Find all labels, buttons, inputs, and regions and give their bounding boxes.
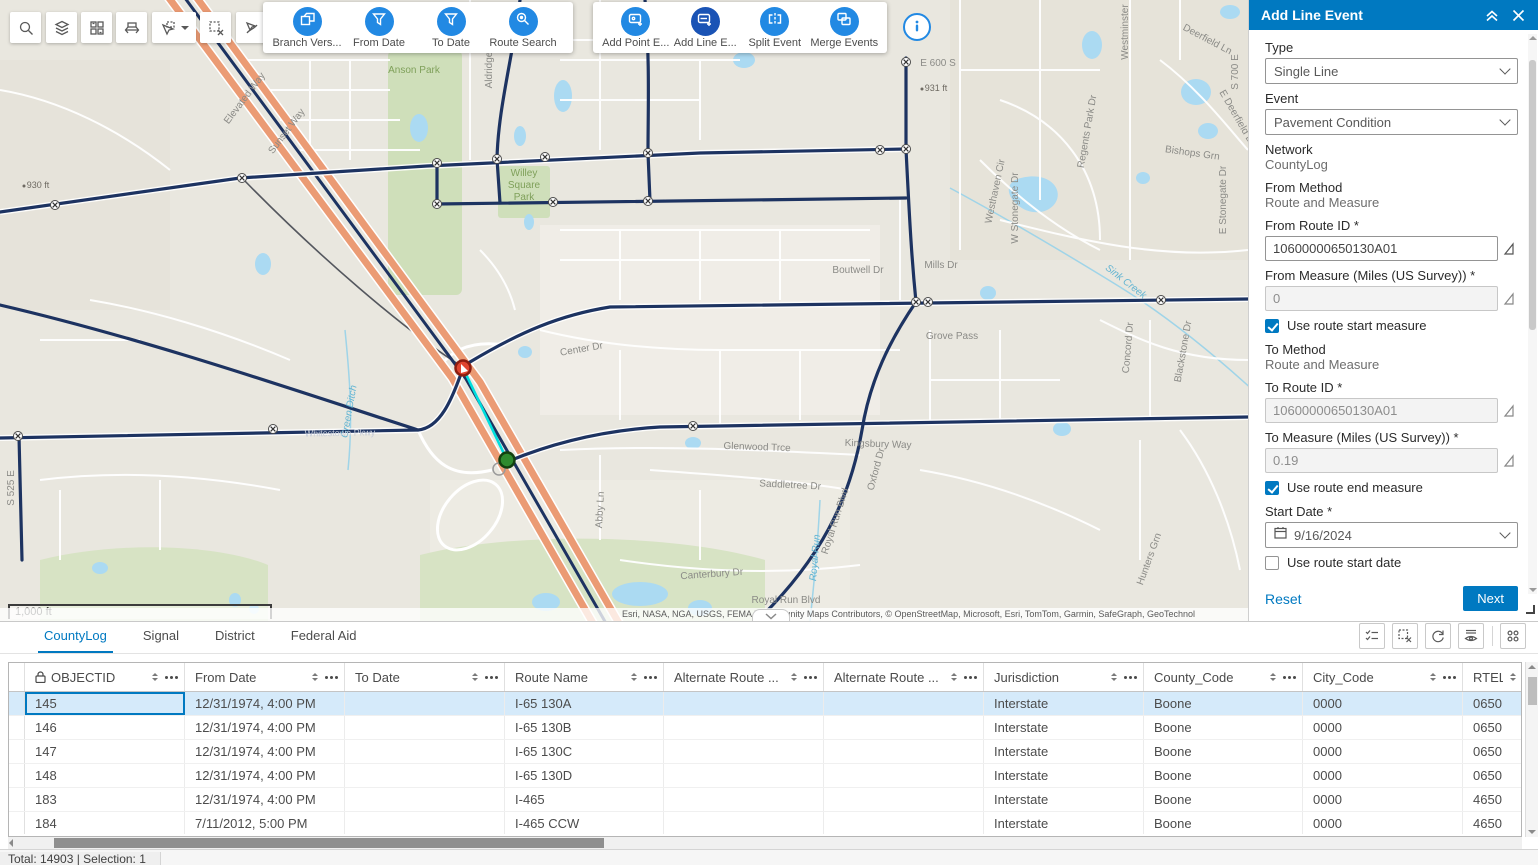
table-cell[interactable]: [345, 716, 505, 739]
sort-icon[interactable]: [791, 670, 797, 684]
panel-header: Add Line Event: [1249, 0, 1538, 30]
info-button[interactable]: [903, 13, 931, 41]
to-route-id-label: To Route ID *: [1265, 380, 1518, 395]
from-method-value: Route and Measure: [1265, 195, 1518, 211]
table-cell[interactable]: 0000: [1303, 764, 1463, 787]
column-menu-icon[interactable]: [964, 676, 977, 679]
column-header[interactable]: Alternate Route ...: [664, 663, 824, 691]
to-route-id-input[interactable]: [1265, 398, 1498, 423]
column-menu-icon[interactable]: [644, 676, 657, 679]
column-header[interactable]: City_Code: [1303, 663, 1463, 691]
table-cell[interactable]: Interstate: [984, 692, 1144, 715]
route-search-button[interactable]: Route Search: [487, 6, 559, 49]
to-date-button[interactable]: To Date: [415, 6, 487, 49]
event-select[interactable]: Pavement Condition: [1265, 109, 1518, 135]
table-row[interactable]: 1847/11/2012, 5:00 PMI-465 CCWInterstate…: [9, 812, 1521, 834]
table-row[interactable]: 14612/31/1974, 4:00 PMI-65 130BInterstat…: [9, 716, 1521, 740]
scroll-up-arrow[interactable]: [1529, 36, 1537, 40]
table-cell[interactable]: 184: [25, 812, 185, 834]
sort-icon[interactable]: [631, 670, 637, 684]
type-select[interactable]: Single Line: [1265, 58, 1518, 84]
sort-icon[interactable]: [312, 670, 318, 684]
sort-icon[interactable]: [152, 670, 158, 684]
start-date-label: Start Date *: [1265, 504, 1518, 519]
map-label: Boutwell Dr: [832, 265, 884, 276]
map-label: Grove Pass: [926, 331, 978, 342]
map-label: Anson Park: [388, 65, 441, 76]
column-menu-icon[interactable]: [325, 676, 338, 679]
table-cell[interactable]: [824, 716, 984, 739]
record-count-status: Total: 14903 | Selection: 1: [0, 852, 161, 865]
column-header[interactable]: County_Code: [1144, 663, 1303, 691]
table-row[interactable]: 14712/31/1974, 4:00 PMI-65 130CInterstat…: [9, 740, 1521, 764]
tab-signal[interactable]: Signal: [137, 628, 185, 653]
row-gutter[interactable]: [9, 764, 25, 787]
panel-form: Type Single Line Event Pavement Conditio…: [1249, 30, 1526, 579]
table-cell[interactable]: 0000: [1303, 692, 1463, 715]
table-cell[interactable]: 12/31/1974, 4:00 PM: [185, 788, 345, 811]
chevron-down-icon: [1499, 527, 1510, 538]
chevron-down-icon: [181, 26, 189, 34]
table-row[interactable]: 18312/31/1974, 4:00 PMI-465InterstateBoo…: [9, 788, 1521, 812]
basemap-gallery-button[interactable]: [81, 12, 112, 43]
column-header[interactable]: OBJECTID: [25, 663, 185, 691]
edit-events-toolbar: Add Point E... Add Line E... Split Event…: [593, 2, 887, 53]
sort-icon[interactable]: [951, 670, 957, 684]
table-cell[interactable]: 0000: [1303, 740, 1463, 763]
checkbox-icon: [1265, 319, 1279, 333]
table-cell[interactable]: 146: [25, 716, 185, 739]
table-cell[interactable]: Boone: [1144, 692, 1303, 715]
map-canvas[interactable]: Elevated WaySunset WayAnson ParkAldridge…: [0, 0, 1248, 621]
search-button[interactable]: [10, 12, 41, 43]
map-label: Abby Ln: [594, 491, 607, 528]
table-cell[interactable]: [345, 740, 505, 763]
table-cell[interactable]: I-465 CCW: [505, 812, 664, 834]
table-cell[interactable]: [824, 740, 984, 763]
type-label: Type: [1265, 40, 1518, 55]
add-line-event-button[interactable]: Add Line E...: [671, 6, 741, 49]
map-label: Mills Dr: [924, 260, 958, 271]
to-method-value: Route and Measure: [1265, 357, 1518, 373]
to-measure-label: To Measure (Miles (US Survey)) *: [1265, 430, 1518, 445]
table-cell[interactable]: Boone: [1144, 812, 1303, 834]
table-status-bar: Total: 14903 | Selection: 1: [0, 849, 1538, 865]
panel-scrollbar[interactable]: [1528, 34, 1537, 594]
funnel-icon: [443, 11, 459, 32]
table-cell[interactable]: Boone: [1144, 788, 1303, 811]
chevron-down-icon: [1499, 63, 1510, 74]
table-cell[interactable]: 0650: [1463, 740, 1521, 763]
table-cell[interactable]: 12/31/1974, 4:00 PM: [185, 716, 345, 739]
table-cell[interactable]: 0650: [1463, 716, 1521, 739]
table-cell[interactable]: 12/31/1974, 4:00 PM: [185, 692, 345, 715]
table-cell[interactable]: Boone: [1144, 716, 1303, 739]
map-label: E 600 S: [920, 58, 956, 69]
add-line-event-icon: [697, 11, 713, 32]
table-cell[interactable]: I-65 130A: [505, 692, 664, 715]
panel-title: Add Line Event: [1261, 7, 1476, 23]
table-cell[interactable]: [664, 812, 824, 834]
table-cell[interactable]: 7/11/2012, 5:00 PM: [185, 812, 345, 834]
table-cell[interactable]: 0650: [1463, 692, 1521, 715]
table-row[interactable]: 14812/31/1974, 4:00 PMI-65 130DInterstat…: [9, 764, 1521, 788]
add-point-event-icon: [628, 11, 644, 32]
pick-on-map-icon[interactable]: [1498, 404, 1518, 417]
checkbox-icon: [1265, 481, 1279, 495]
review-toolbar: Branch Vers... From Date To Date Route S…: [263, 2, 573, 53]
table-cell[interactable]: 148: [25, 764, 185, 787]
chevron-down-icon: [1499, 114, 1510, 125]
map-label: 930 ft: [27, 180, 50, 190]
start-date-picker[interactable]: 9/16/2024: [1265, 522, 1518, 548]
table-toolbar: [1352, 623, 1526, 649]
map-label: Park: [514, 192, 536, 203]
column-menu-icon[interactable]: [485, 676, 498, 679]
info-icon: [910, 19, 924, 36]
row-gutter-header: [9, 663, 25, 691]
show-selected-records-button[interactable]: [1359, 623, 1385, 649]
column-menu-icon[interactable]: [1443, 676, 1456, 679]
attribute-grid: OBJECTIDFrom DateTo DateRoute NameAltern…: [8, 662, 1522, 837]
collapse-table-button[interactable]: [752, 609, 790, 621]
end-date-label: End Date: [1265, 577, 1518, 579]
table-cell[interactable]: [345, 788, 505, 811]
table-cell[interactable]: [664, 716, 824, 739]
from-method-label: From Method: [1265, 180, 1518, 195]
table-row[interactable]: 14512/31/1974, 4:00 PMI-65 130AInterstat…: [9, 692, 1521, 716]
split-event-icon: [767, 11, 783, 32]
collapse-panel-icon[interactable]: [1482, 5, 1502, 25]
table-cell[interactable]: [664, 692, 824, 715]
map-label: 931 ft: [925, 83, 948, 93]
table-cell[interactable]: 4650: [1463, 812, 1521, 834]
column-header[interactable]: To Date: [345, 663, 505, 691]
map-label: Square: [508, 180, 541, 191]
table-cell[interactable]: [664, 764, 824, 787]
branch-versions-button[interactable]: Branch Vers...: [271, 6, 343, 49]
table-cell[interactable]: 0000: [1303, 788, 1463, 811]
table-cell[interactable]: I-65 130B: [505, 716, 664, 739]
column-header[interactable]: Alternate Route ...: [824, 663, 984, 691]
to-measure-marker[interactable]: [500, 453, 515, 468]
event-label: Event: [1265, 91, 1518, 106]
pick-on-map-icon[interactable]: [1498, 292, 1518, 305]
refresh-button[interactable]: [1425, 623, 1451, 649]
table-cell[interactable]: 4650: [1463, 788, 1521, 811]
table-cell[interactable]: Interstate: [984, 812, 1144, 834]
table-cell[interactable]: Interstate: [984, 764, 1144, 787]
from-measure-marker[interactable]: [456, 361, 471, 376]
tab-district[interactable]: District: [209, 628, 261, 653]
use-route-start-measure-checkbox[interactable]: Use route start measure: [1265, 318, 1518, 333]
map-label: Willey: [511, 168, 538, 179]
network-label: Network: [1265, 142, 1518, 157]
table-cell[interactable]: I-65 130C: [505, 740, 664, 763]
map-label: S 525 E: [6, 470, 17, 506]
from-measure-label: From Measure (Miles (US Survey)) *: [1265, 268, 1518, 283]
basemap: Elevated WaySunset WayAnson ParkAldridge…: [0, 0, 1248, 621]
from-route-id-input[interactable]: [1265, 236, 1498, 261]
route-search-icon: [515, 11, 531, 32]
from-measure-input[interactable]: [1265, 286, 1498, 311]
layers-button[interactable]: [46, 12, 77, 43]
sort-icon[interactable]: [1430, 670, 1436, 684]
sort-icon[interactable]: [472, 670, 478, 684]
map-label: Westminster: [1120, 4, 1131, 60]
use-route-start-date-checkbox[interactable]: Use route start date: [1265, 555, 1518, 570]
table-cell[interactable]: 12/31/1974, 4:00 PM: [185, 764, 345, 787]
merge-events-button[interactable]: Merge Events: [810, 6, 880, 49]
select-tool-button[interactable]: [152, 12, 196, 43]
close-icon[interactable]: [1508, 5, 1528, 25]
scroll-down-arrow[interactable]: [1528, 830, 1536, 834]
table-tabs: CountyLog Signal District Federal Aid: [0, 622, 1538, 654]
table-cell[interactable]: [824, 764, 984, 787]
row-gutter[interactable]: [9, 788, 25, 811]
hide-columns-button[interactable]: [1458, 623, 1484, 649]
table-options-button[interactable]: [1500, 623, 1526, 649]
sort-icon[interactable]: [1111, 670, 1117, 684]
map-label: Whitestown Pkwy: [305, 427, 376, 438]
table-cell[interactable]: 147: [25, 740, 185, 763]
panel-resize-handle[interactable]: [1525, 601, 1535, 619]
map-label: Royal Run Blvd: [752, 595, 821, 606]
column-header[interactable]: Route Name: [505, 663, 664, 691]
from-route-id-label: From Route ID *: [1265, 218, 1518, 233]
row-gutter[interactable]: [9, 692, 25, 715]
map-label: S 700 E: [1230, 54, 1241, 90]
chevron-down-icon: [765, 607, 777, 621]
column-header[interactable]: RTEL: [1463, 663, 1522, 691]
checkbox-icon: [1265, 556, 1279, 570]
table-cell[interactable]: [664, 740, 824, 763]
table-cell[interactable]: 0000: [1303, 812, 1463, 834]
to-measure-input[interactable]: [1265, 448, 1498, 473]
table-horizontal-scrollbar[interactable]: [8, 837, 1522, 849]
merge-events-icon: [836, 11, 852, 32]
event-editor-app: Elevated WaySunset WayAnson ParkAldridge…: [0, 0, 1538, 865]
use-route-end-measure-checkbox[interactable]: Use route end measure: [1265, 480, 1518, 495]
attribute-table-section: CountyLog Signal District Federal Aid: [0, 621, 1538, 865]
grid-rows: 14512/31/1974, 4:00 PMI-65 130AInterstat…: [9, 692, 1521, 834]
table-cell[interactable]: [824, 812, 984, 834]
table-cell[interactable]: Boone: [1144, 740, 1303, 763]
clear-selection-button[interactable]: [1392, 623, 1418, 649]
scroll-left-arrow[interactable]: [9, 839, 13, 847]
map-label: W Stonegate Dr: [1010, 172, 1021, 244]
column-menu-icon[interactable]: [1283, 676, 1296, 679]
pick-on-map-icon[interactable]: [1498, 454, 1518, 467]
measure-button[interactable]: [116, 12, 147, 43]
table-cell[interactable]: 12/31/1974, 4:00 PM: [185, 740, 345, 763]
branch-version-icon: [299, 11, 315, 32]
funnel-icon: [371, 11, 387, 32]
table-cell[interactable]: I-65 130D: [505, 764, 664, 787]
clear-selection-button[interactable]: [200, 12, 231, 43]
row-gutter[interactable]: [9, 716, 25, 739]
column-menu-icon[interactable]: [1124, 676, 1137, 679]
table-cell[interactable]: Interstate: [984, 740, 1144, 763]
table-cell[interactable]: Interstate: [984, 788, 1144, 811]
table-cell[interactable]: Boone: [1144, 764, 1303, 787]
table-cell[interactable]: 145: [25, 692, 185, 715]
scroll-down-arrow[interactable]: [1529, 588, 1537, 592]
grid-header-row: OBJECTIDFrom DateTo DateRoute NameAltern…: [9, 663, 1521, 692]
panel-footer: Reset Next: [1265, 586, 1518, 611]
sort-icon[interactable]: [1510, 670, 1516, 684]
table-cell[interactable]: Interstate: [984, 716, 1144, 739]
add-point-event-button[interactable]: Add Point E...: [601, 6, 671, 49]
table-cell[interactable]: 0650: [1463, 764, 1521, 787]
table-cell[interactable]: [345, 764, 505, 787]
scrollbar-thumb[interactable]: [1528, 677, 1537, 705]
tab-countylog[interactable]: CountyLog: [38, 628, 113, 653]
tab-federal-aid[interactable]: Federal Aid: [285, 628, 363, 653]
table-cell[interactable]: [824, 692, 984, 715]
reset-link[interactable]: Reset: [1265, 591, 1463, 607]
table-cell[interactable]: 183: [25, 788, 185, 811]
scrollbar-thumb[interactable]: [54, 838, 604, 848]
sort-icon[interactable]: [1270, 670, 1276, 684]
scrollbar-thumb[interactable]: [1529, 60, 1536, 330]
table-cell[interactable]: I-465: [505, 788, 664, 811]
split-event-button[interactable]: Split Event: [740, 6, 810, 49]
from-date-button[interactable]: From Date: [343, 6, 415, 49]
calendar-icon: [1274, 526, 1287, 544]
table-cell[interactable]: [345, 692, 505, 715]
column-menu-icon[interactable]: [804, 676, 817, 679]
network-value: CountyLog: [1265, 157, 1518, 173]
map-label: Aldridge: [484, 51, 495, 88]
to-method-label: To Method: [1265, 342, 1518, 357]
row-gutter[interactable]: [9, 740, 25, 763]
column-header[interactable]: From Date: [185, 663, 345, 691]
column-header[interactable]: Jurisdiction: [984, 663, 1144, 691]
pick-on-map-icon[interactable]: [1498, 242, 1518, 255]
table-cell[interactable]: [824, 788, 984, 811]
next-button[interactable]: Next: [1463, 586, 1518, 611]
add-line-event-panel: Add Line Event Type Single Line Event Pa…: [1248, 0, 1538, 621]
table-cell[interactable]: [664, 788, 824, 811]
map-attribution: Esri, NASA, NGA, USGS, FEMA | Community …: [0, 608, 1248, 621]
column-menu-icon[interactable]: [165, 676, 178, 679]
divider: [1492, 626, 1493, 646]
scroll-up-arrow[interactable]: [1528, 665, 1536, 669]
row-gutter[interactable]: [9, 812, 25, 834]
map-label: E Stonegate Dr: [1218, 165, 1229, 234]
table-vertical-scrollbar[interactable]: [1525, 662, 1538, 837]
table-cell[interactable]: [345, 812, 505, 834]
table-cell[interactable]: 0000: [1303, 716, 1463, 739]
